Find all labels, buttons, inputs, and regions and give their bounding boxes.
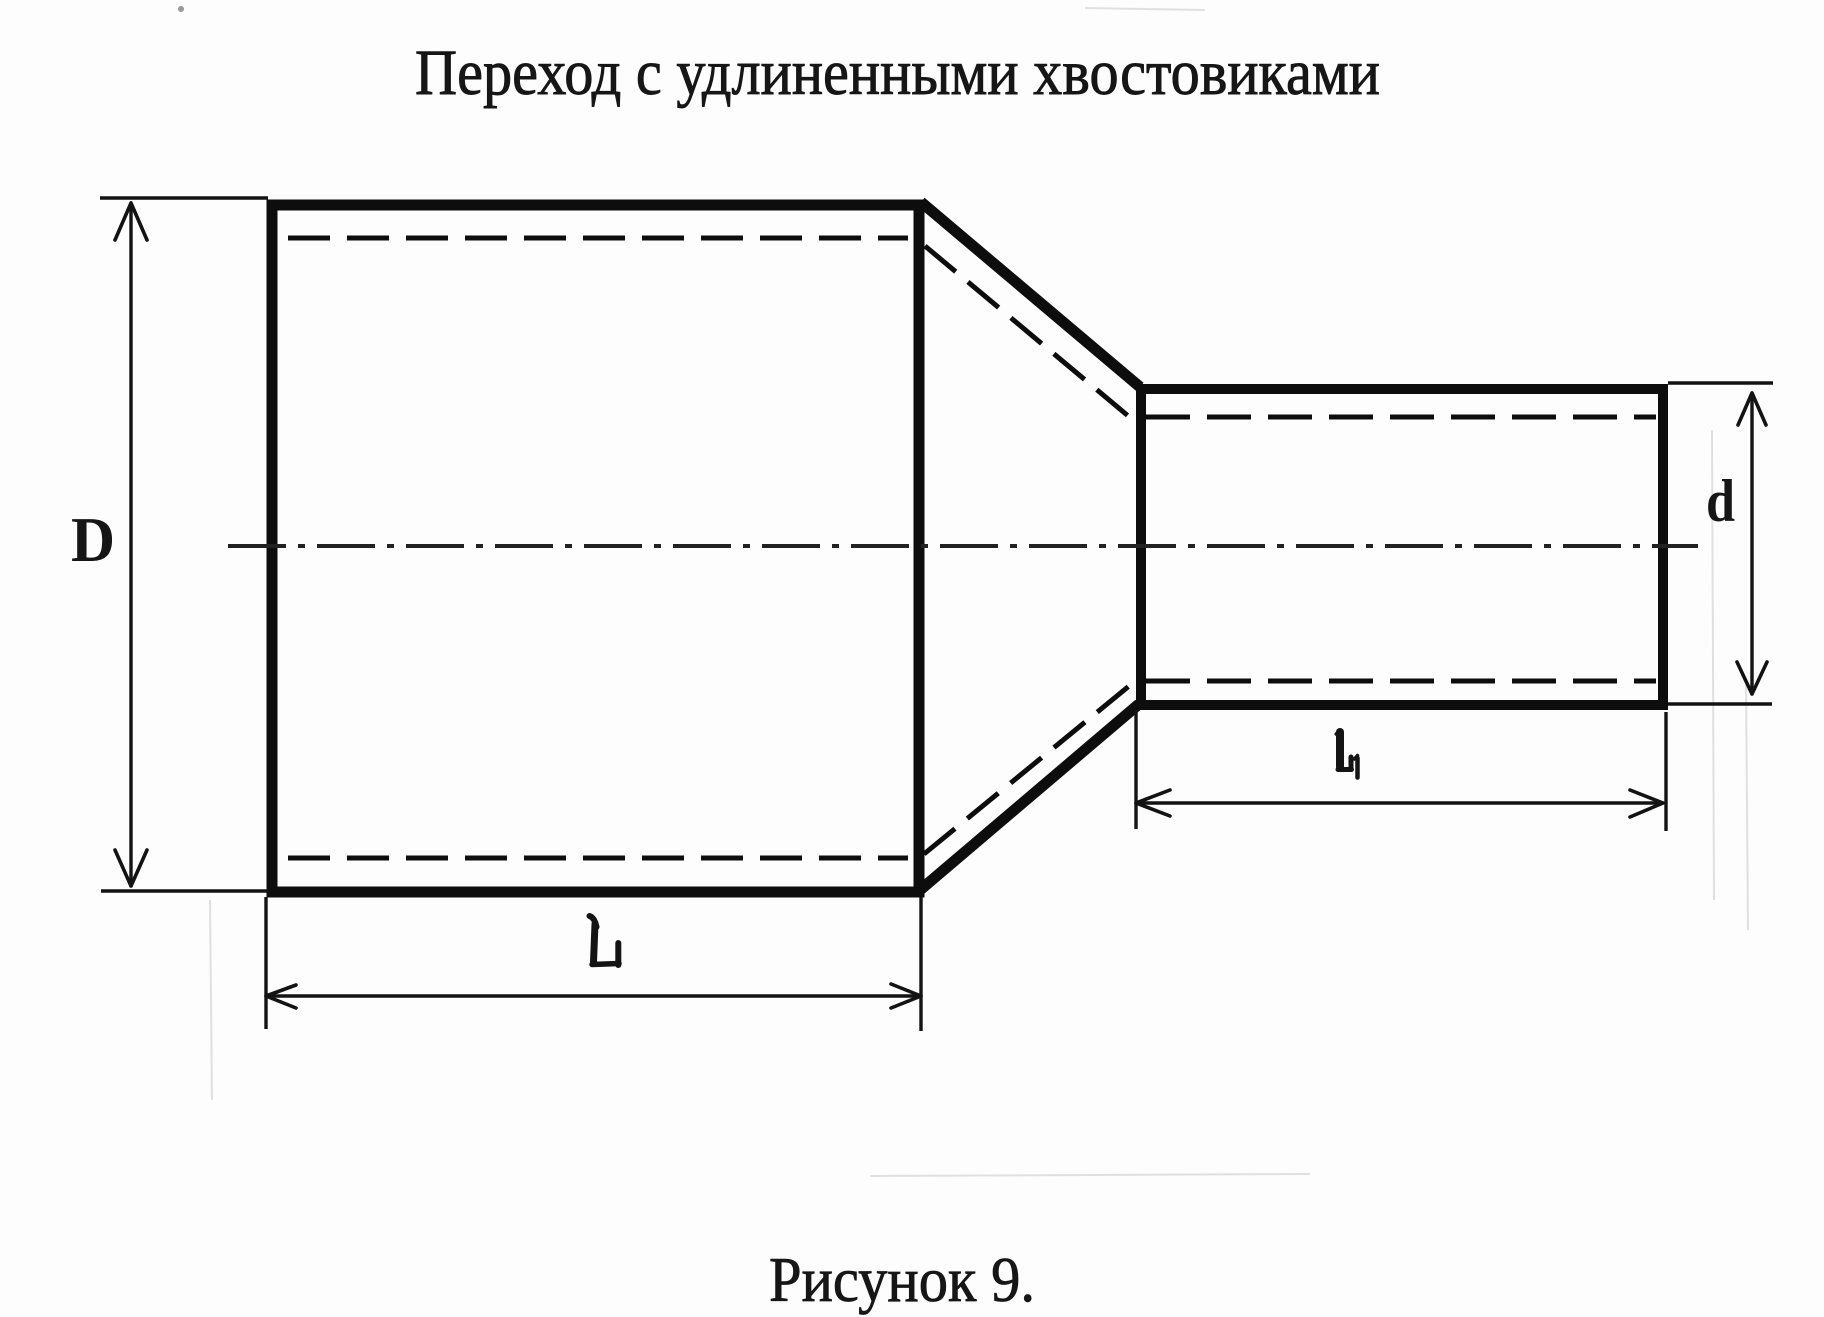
svg-text:Переход с удлиненными хвостови: Переход с удлиненными хвостовиками bbox=[415, 37, 1380, 109]
svg-text:Рисунок 9.: Рисунок 9. bbox=[769, 1245, 1035, 1315]
svg-text:d: d bbox=[1706, 468, 1735, 534]
svg-text:D: D bbox=[71, 504, 115, 575]
